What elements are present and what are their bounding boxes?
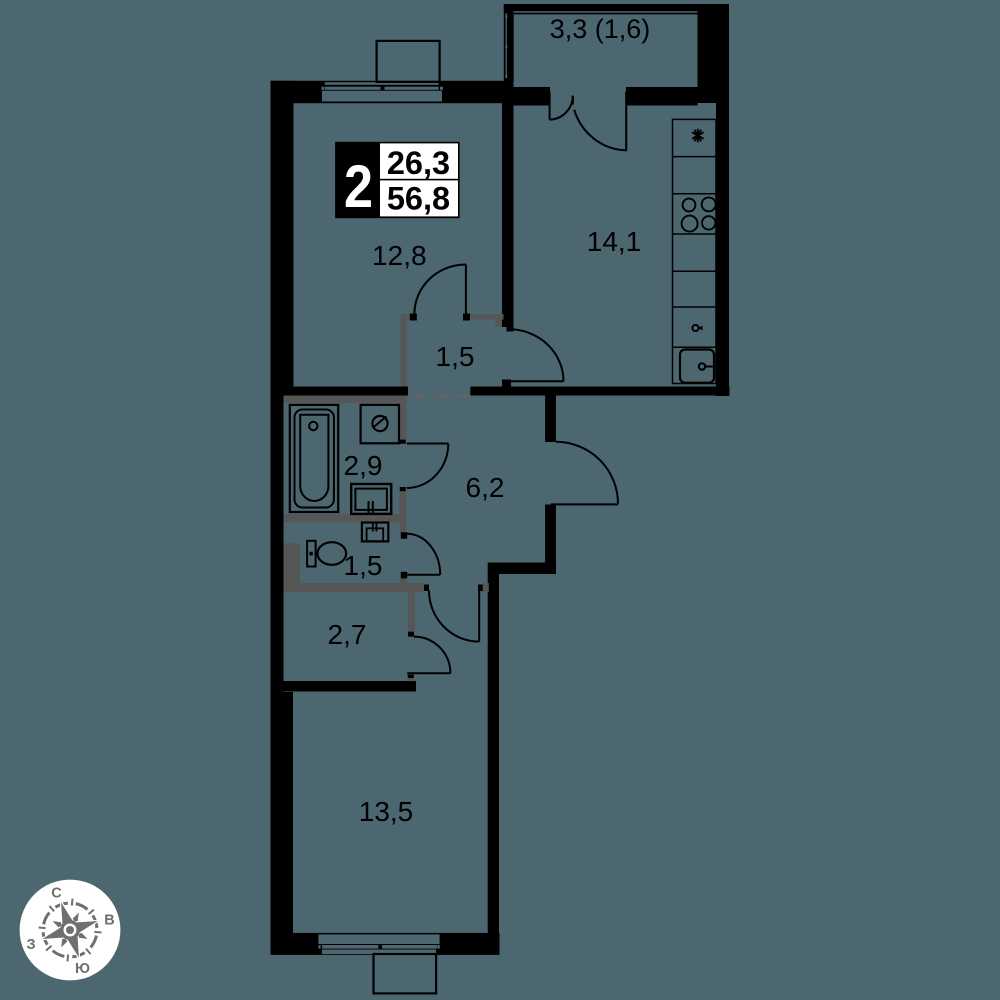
svg-text:2,7: 2,7 — [328, 619, 367, 650]
svg-text:14,1: 14,1 — [587, 226, 642, 257]
svg-text:6,2: 6,2 — [466, 472, 505, 503]
svg-text:В: В — [104, 913, 114, 929]
svg-text:1,5: 1,5 — [344, 550, 383, 581]
svg-text:26,3: 26,3 — [387, 145, 450, 181]
svg-text:З: З — [26, 937, 35, 953]
svg-text:С: С — [51, 886, 62, 902]
svg-text:56,8: 56,8 — [387, 181, 450, 217]
svg-text:Ю: Ю — [75, 961, 90, 977]
svg-text:2,9: 2,9 — [344, 450, 383, 481]
svg-text:13,5: 13,5 — [359, 796, 414, 827]
svg-text:2: 2 — [344, 153, 373, 220]
svg-text:1,5: 1,5 — [436, 341, 475, 372]
svg-text:3,3 (1,6): 3,3 (1,6) — [550, 14, 651, 44]
svg-text:12,8: 12,8 — [372, 240, 427, 271]
